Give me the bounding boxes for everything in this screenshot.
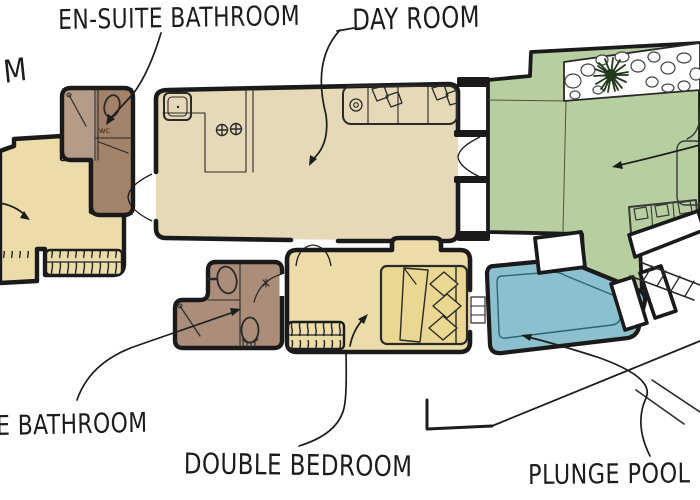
bathroom-label: E BATHROOM bbox=[0, 410, 148, 441]
plunge-pool-label: PLUNGE POOL bbox=[528, 460, 691, 489]
day-room-floor bbox=[156, 84, 458, 241]
bathroom-floor bbox=[175, 262, 282, 348]
bedroom-pool-door bbox=[471, 297, 485, 323]
left-room-wardrobe-hatch-strip bbox=[1, 251, 36, 262]
wardrobe-box bbox=[46, 250, 122, 275]
double-bedroom-label: DOUBLE BEDROOM bbox=[184, 450, 413, 482]
door-french-right bbox=[458, 137, 480, 177]
en-suite-shower-floor bbox=[62, 88, 96, 160]
wc-text: WC bbox=[99, 127, 110, 135]
day-room bbox=[156, 84, 458, 241]
bed-symbol bbox=[381, 266, 467, 344]
floor-plan-canvas: WC bbox=[0, 0, 700, 500]
bedroom-wardrobe-box bbox=[288, 322, 344, 349]
plunge-pool-leader-arrow bbox=[521, 334, 650, 456]
day-room-label: DAY ROOM bbox=[352, 3, 480, 36]
en-suite-bathroom-label: EN-SUITE BATHROOM bbox=[58, 3, 300, 35]
truncated-label-fragment: M bbox=[2, 55, 29, 90]
en-suite-wc-floor bbox=[91, 88, 133, 215]
double-bedroom-room bbox=[287, 238, 485, 352]
pool-deck-square bbox=[535, 232, 585, 273]
bathroom-room bbox=[175, 262, 285, 348]
